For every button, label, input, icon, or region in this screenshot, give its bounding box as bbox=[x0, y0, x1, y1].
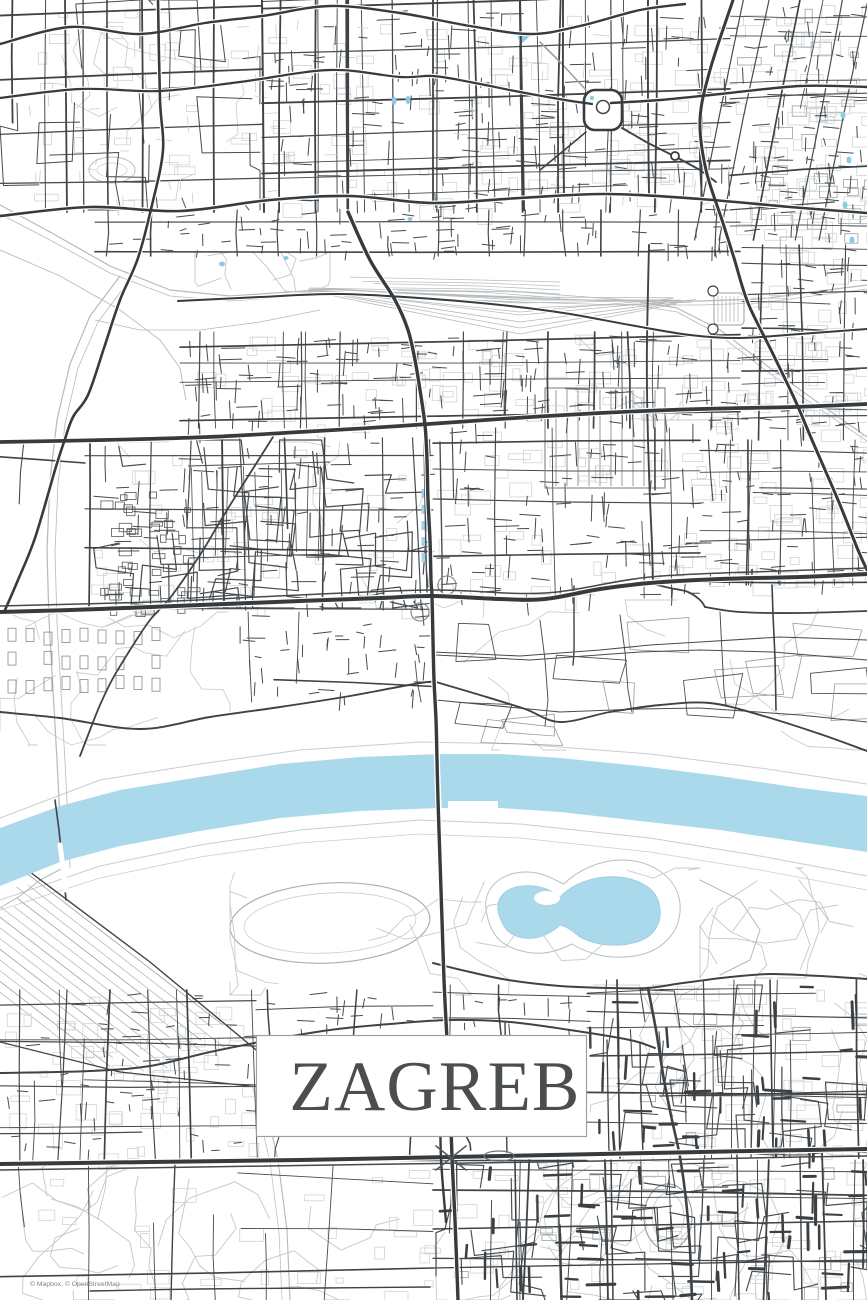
svg-text:© Mapbox, © OpenStreetMap: © Mapbox, © OpenStreetMap bbox=[30, 1280, 120, 1288]
svg-text:ZAGREB: ZAGREB bbox=[289, 1048, 580, 1126]
